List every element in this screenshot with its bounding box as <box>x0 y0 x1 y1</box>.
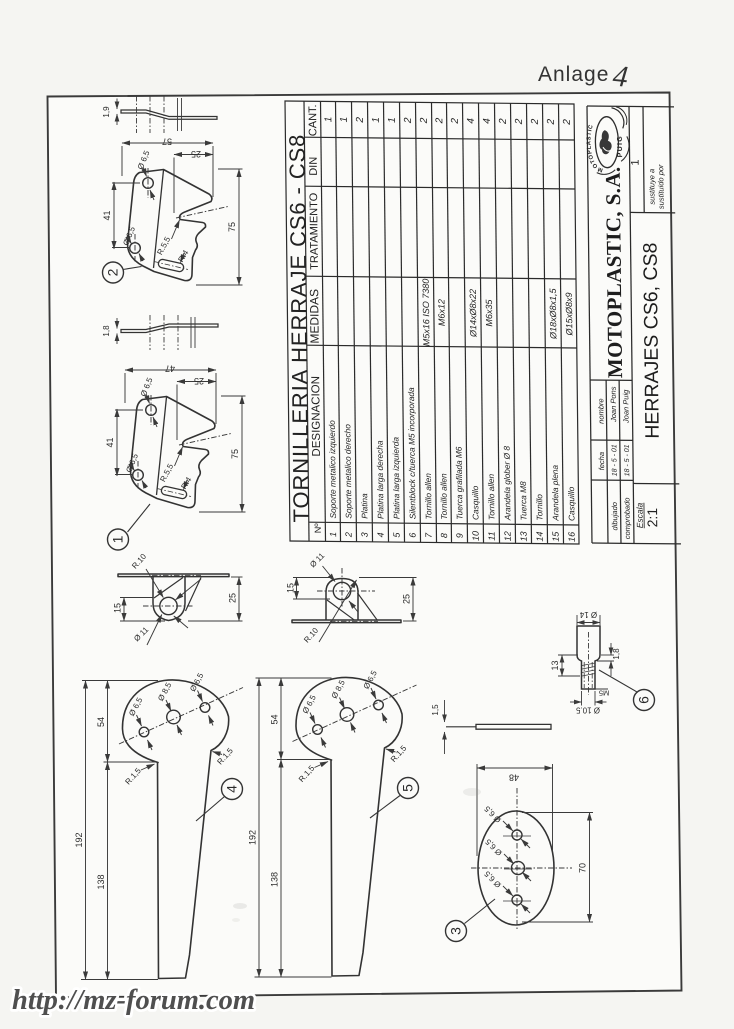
svg-text:2: 2 <box>434 117 445 124</box>
svg-text:13: 13 <box>550 660 560 670</box>
svg-text:14: 14 <box>535 532 545 542</box>
svg-text:1: 1 <box>328 532 338 537</box>
svg-text:16: 16 <box>567 532 577 542</box>
svg-text:M6x12: M6x12 <box>436 299 446 326</box>
svg-text:41: 41 <box>105 437 115 447</box>
svg-text:M5: M5 <box>599 689 609 698</box>
svg-text:dibujado: dibujado <box>610 502 619 530</box>
svg-text:2:1: 2:1 <box>644 508 660 528</box>
svg-text:25: 25 <box>191 149 201 159</box>
svg-text:8: 8 <box>439 533 449 538</box>
svg-text:http://mz-forum.com: http://mz-forum.com <box>12 985 255 1016</box>
svg-text:11: 11 <box>487 531 497 540</box>
svg-text:4: 4 <box>376 532 386 537</box>
svg-text:1: 1 <box>110 535 126 543</box>
svg-text:1: 1 <box>323 117 334 123</box>
svg-text:1: 1 <box>339 117 350 123</box>
svg-text:1: 1 <box>630 159 642 165</box>
svg-text:2: 2 <box>562 119 573 126</box>
svg-text:DIN: DIN <box>308 157 320 176</box>
svg-text:6: 6 <box>636 696 652 704</box>
svg-text:Silentblock c/tuerca M5 incorp: Silentblock c/tuerca M5 incorporada <box>406 387 418 519</box>
svg-text:4: 4 <box>482 118 493 124</box>
svg-text:192: 192 <box>248 830 258 845</box>
svg-text:2: 2 <box>450 117 461 124</box>
svg-text:25: 25 <box>228 593 238 603</box>
svg-text:MOTOPLASTIC, S.A.: MOTOPLASTIC, S.A. <box>601 166 627 378</box>
svg-text:Ø15xØ8x9: Ø15xØ8x9 <box>564 292 575 336</box>
svg-text:1: 1 <box>371 117 382 123</box>
svg-text:HERRAJES CS6, CS8: HERRAJES CS6, CS8 <box>640 242 664 438</box>
svg-text:70: 70 <box>578 863 588 873</box>
svg-text:57: 57 <box>162 137 172 147</box>
svg-text:Nº: Nº <box>313 523 323 534</box>
svg-text:fecha: fecha <box>597 452 606 470</box>
svg-text:5: 5 <box>400 784 416 792</box>
svg-text:PUIG: PUIG <box>617 135 624 157</box>
svg-text:Arandela plena: Arandela plena <box>550 464 561 521</box>
svg-text:2: 2 <box>105 268 121 276</box>
svg-text:MEDIDAS: MEDIDAS <box>307 289 322 344</box>
svg-text:Platina: Platina <box>359 493 369 519</box>
svg-text:Tornillo allen: Tornillo allen <box>486 473 497 520</box>
svg-text:Ø 10.5: Ø 10.5 <box>575 706 600 715</box>
svg-text:Tuerca grafilada M6: Tuerca grafilada M6 <box>454 446 465 520</box>
svg-text:Anlage: Anlage <box>538 63 609 86</box>
svg-text:Ø14xØ8x22: Ø14xØ8x22 <box>468 289 479 338</box>
svg-text:41: 41 <box>102 210 112 220</box>
svg-text:2: 2 <box>514 118 525 125</box>
svg-text:9: 9 <box>455 533 465 538</box>
svg-text:sustituye a: sustituye a <box>647 169 656 205</box>
svg-text:sustituido por: sustituido por <box>656 164 666 209</box>
svg-text:75: 75 <box>227 222 237 232</box>
svg-text:Platina larga derecha: Platina larga derecha <box>375 440 386 519</box>
svg-text:1,8: 1,8 <box>102 325 111 337</box>
svg-text:3: 3 <box>448 927 464 935</box>
svg-text:48: 48 <box>509 773 519 783</box>
svg-text:Joan Pons: Joan Pons <box>609 386 618 423</box>
svg-text:1: 1 <box>387 117 398 123</box>
svg-text:DESIGNACION: DESIGNACION <box>310 376 323 457</box>
svg-text:54: 54 <box>270 714 280 724</box>
svg-text:2: 2 <box>498 118 509 125</box>
svg-text:13: 13 <box>519 531 529 541</box>
svg-text:18 - 5 - 01: 18 - 5 - 01 <box>611 444 618 476</box>
svg-text:138: 138 <box>96 874 106 889</box>
svg-text:2: 2 <box>355 116 366 123</box>
svg-text:CANT.: CANT. <box>307 104 319 136</box>
svg-text:Platina larga izquierda: Platina larga izquierda <box>391 437 402 520</box>
svg-text:Casquillo: Casquillo <box>566 486 576 521</box>
svg-text:192: 192 <box>74 832 84 847</box>
svg-text:15: 15 <box>286 583 296 593</box>
svg-text:comprobado: comprobado <box>622 497 631 539</box>
svg-text:54: 54 <box>96 717 106 727</box>
svg-text:Ø 14: Ø 14 <box>579 610 597 619</box>
svg-text:Tornillo allen: Tornillo allen <box>423 473 434 520</box>
svg-text:12: 12 <box>503 531 513 541</box>
svg-text:TRATAMIENTO: TRATAMIENTO <box>308 192 321 270</box>
svg-text:Tuerca M8: Tuerca M8 <box>518 481 528 521</box>
svg-text:2: 2 <box>344 532 354 538</box>
svg-text:1,5: 1,5 <box>431 704 440 716</box>
svg-text:M5x16 ISO 7380: M5x16 ISO 7380 <box>421 279 432 347</box>
svg-text:138: 138 <box>270 872 280 887</box>
svg-text:nombre: nombre <box>596 398 605 424</box>
svg-text:Tornillo allen: Tornillo allen <box>438 473 449 520</box>
svg-text:25: 25 <box>402 594 412 604</box>
svg-text:Joan Puig: Joan Puig <box>621 389 630 424</box>
svg-text:2: 2 <box>546 118 557 125</box>
svg-text:4: 4 <box>466 118 477 124</box>
svg-text:2: 2 <box>403 117 414 124</box>
svg-text:M6x35: M6x35 <box>484 299 494 327</box>
svg-text:15: 15 <box>113 603 123 613</box>
svg-text:47: 47 <box>165 364 175 374</box>
svg-text:Soporte metalico izquierdo: Soporte metalico izquierdo <box>327 420 338 519</box>
svg-text:3: 3 <box>360 532 370 537</box>
svg-text:Arandela glober Ø 8: Arandela glober Ø 8 <box>502 446 513 522</box>
svg-text:1,8: 1,8 <box>612 648 621 660</box>
svg-text:Tornillo: Tornillo <box>534 494 544 521</box>
svg-text:2: 2 <box>530 118 541 125</box>
svg-text:6: 6 <box>408 533 418 538</box>
svg-text:18 - 5 - 01: 18 - 5 - 01 <box>624 444 631 476</box>
svg-text:Casquillo: Casquillo <box>470 485 480 520</box>
svg-text:2: 2 <box>419 117 430 124</box>
svg-text:4: 4 <box>224 785 240 793</box>
svg-text:25: 25 <box>194 376 204 386</box>
svg-text:Ø18xØ8x1,5: Ø18xØ8x1,5 <box>548 287 559 340</box>
svg-text:Soporte metalico derecho: Soporte metalico derecho <box>342 424 353 519</box>
svg-text:15: 15 <box>551 531 561 542</box>
svg-text:1,9: 1,9 <box>102 106 111 118</box>
svg-text:75: 75 <box>230 449 240 459</box>
svg-text:10: 10 <box>471 531 481 541</box>
